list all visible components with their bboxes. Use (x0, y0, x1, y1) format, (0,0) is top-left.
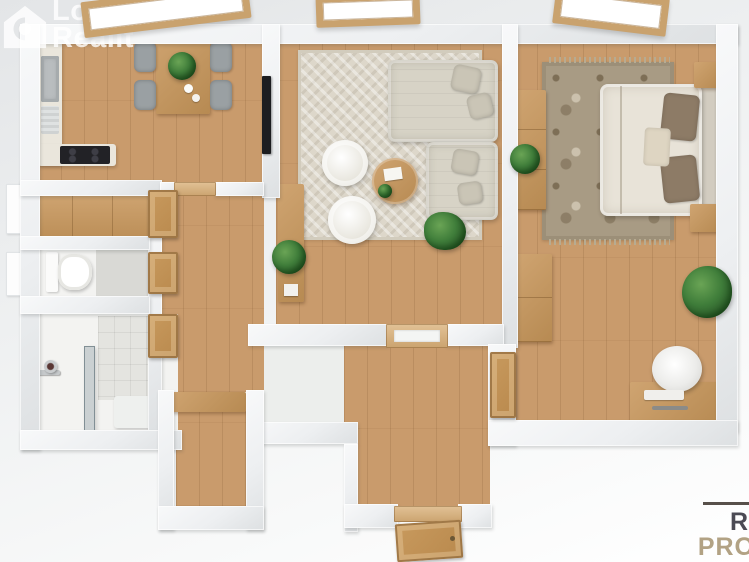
cooktop (60, 146, 110, 164)
bath-storage-box (114, 396, 152, 428)
tv (262, 76, 271, 154)
wall-wc-bottom (20, 296, 150, 314)
brand-line2: PRO (679, 535, 749, 560)
desk-chair (652, 346, 702, 392)
wall-closet-bottom (158, 506, 264, 530)
decor-frame (284, 284, 298, 296)
shower-mixer-icon (44, 360, 57, 373)
storage-cabinets (32, 194, 150, 240)
dining-chair (210, 42, 232, 72)
cup (184, 84, 193, 93)
kitchen-doorway-threshold (174, 182, 216, 196)
wardrobe-plant-icon (510, 144, 540, 174)
dining-chair (134, 42, 156, 72)
wall-living-bottom (248, 324, 388, 346)
brand-rule (703, 502, 749, 505)
living-doorway-opening (394, 330, 440, 342)
desk-accessory (644, 390, 684, 400)
wall-alcove-bottom (248, 422, 358, 444)
kitchen-sink (41, 56, 59, 102)
dish-drainer (41, 106, 59, 134)
toilet-tank (46, 252, 58, 292)
dining-chair (210, 80, 232, 110)
wall-bedroom-bottom (488, 420, 738, 446)
wall-entry-bottom (458, 504, 492, 528)
closet-floor (176, 404, 246, 506)
door-bathroom (148, 314, 178, 358)
door-bedroom (490, 352, 516, 418)
door-kitchen (148, 190, 178, 238)
closet-shelf (170, 392, 246, 412)
desk-accessory (652, 406, 688, 410)
coffee-table-plant-icon (378, 184, 392, 198)
wardrobe (516, 254, 552, 342)
cup (192, 94, 200, 102)
bed-duvet-fold (620, 86, 622, 214)
brand-logo: R PRO (679, 502, 749, 560)
entry-hall-floor (344, 346, 490, 512)
wall-living-bottom (446, 324, 504, 346)
brand-line1: R (679, 510, 748, 535)
floor-plant-icon (424, 212, 466, 250)
wall-kitchen-bottom (20, 180, 162, 196)
door-wc (148, 252, 178, 294)
door-handle-icon (450, 536, 455, 541)
hallway-alcove-floor (264, 346, 344, 426)
coffee-table (372, 158, 418, 204)
wall-entry-bottom (344, 504, 398, 528)
wall-kitchen-doorjamb (214, 182, 264, 196)
house-lens-logo-icon (2, 4, 48, 55)
book (383, 167, 402, 181)
shower-screen (84, 346, 95, 432)
toilet (58, 254, 92, 290)
sideboard-plant-icon (272, 240, 306, 274)
wall-right (716, 24, 738, 432)
pouf (328, 196, 376, 244)
folded-blanket (643, 127, 671, 166)
wall-living-bedroom (502, 24, 518, 348)
window-living (315, 0, 420, 28)
corner-plant-icon (682, 266, 732, 318)
sofa-pillow (450, 63, 483, 94)
pouf (322, 140, 368, 186)
wc-floor-mat (96, 248, 150, 298)
sofa-pillow (457, 180, 484, 205)
sofa-pillow (450, 148, 480, 176)
table-plant-icon (168, 52, 196, 80)
wall-wc-top (20, 236, 150, 250)
dining-chair (134, 80, 156, 110)
floor-plan: Lo Realit R PRO (0, 0, 749, 562)
